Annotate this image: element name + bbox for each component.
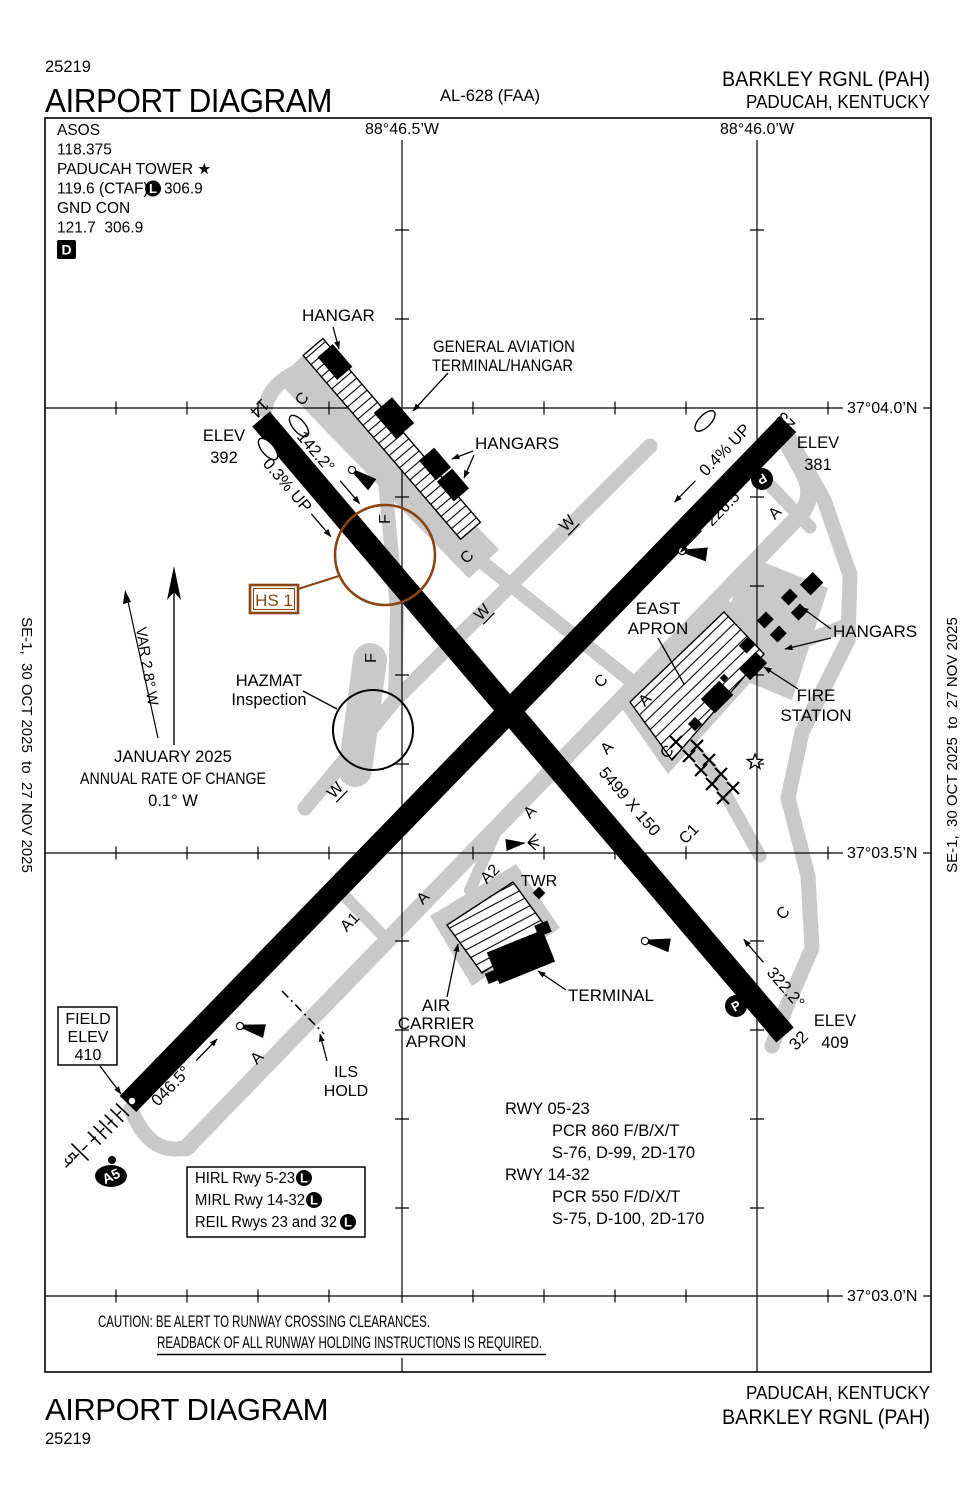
elev-label: ELEV [814, 1012, 856, 1030]
terminal-leader [538, 971, 566, 990]
edition-note-right: SE-1, 30 OCT 2025 to 27 NOV 2025 [944, 617, 961, 873]
airport-name-top: BARKLEY RGNL (PAH) [722, 67, 930, 91]
north-arrows: VAR 2.8° W [123, 566, 181, 745]
east-apron-label-2: APRON [628, 619, 688, 638]
air-carrier-label-3: APRON [406, 1032, 466, 1051]
hangar-label: HANGAR [302, 306, 375, 325]
rwy1432-pcr: PCR 550 F/D/X/T [552, 1188, 680, 1206]
taxiway-label-f: F [363, 653, 380, 663]
air-carrier-label-1: AIR [422, 996, 450, 1015]
elev-rwy23: 381 [804, 456, 832, 474]
city-top: PADUCAH, KENTUCKY [746, 91, 930, 112]
magnetic-north-arrowhead [123, 590, 131, 604]
hangars-label-east: HANGARS [833, 622, 917, 641]
hazmat-label-2: Inspection [231, 691, 306, 709]
tower-label: TWR [521, 873, 557, 890]
hangars-leader [452, 451, 473, 459]
field-elev-value: 410 [75, 1047, 102, 1064]
field-elev-leader [100, 1066, 121, 1094]
taxiway-label-f: F [377, 514, 394, 524]
lat-040-label: 37°04.0’N [847, 400, 917, 417]
asos-label: ASOS [57, 122, 100, 139]
ils-hold-label-2: HOLD [324, 1083, 368, 1100]
lighting-line3: REIL Rwys 23 and 32 [195, 1214, 337, 1231]
ils-hold-leader [320, 1034, 327, 1061]
variation-label: VAR 2.8° W [132, 626, 161, 708]
field-elev-line2: ELEV [68, 1029, 109, 1046]
rwy0523-title: RWY 05-23 [505, 1100, 590, 1118]
comm-block: ASOS 118.375 PADUCAH TOWER ★ 119.6 (CTAF… [57, 122, 211, 259]
chart-number-bottom: 25219 [45, 1430, 91, 1448]
asos-frequency: 118.375 [57, 142, 112, 159]
wind-cone-icon [640, 933, 671, 952]
rwy-number-5: 5 [60, 1149, 80, 1169]
runway-5-threshold-dot [129, 1098, 135, 1104]
star-icon [747, 754, 762, 768]
hangars-leader [464, 455, 474, 478]
lon-460-label: 88°46.0’W [720, 121, 795, 138]
tower-frequency: 119.6 (CTAF) [57, 181, 149, 198]
elev-rwy14: 392 [210, 449, 238, 467]
ga-terminal-label-1: GENERAL AVIATION [433, 337, 575, 356]
hotspot-label: HS 1 [255, 591, 293, 610]
rwy0523-dimensions: 6500 X 150 [428, 730, 500, 803]
taxiway-junction-pad [355, 660, 370, 770]
chart-number-top: 25219 [45, 58, 91, 76]
tower-frequency-uhf: 306.9 [164, 181, 203, 198]
fire-station-label-2: STATION [780, 706, 851, 725]
lighting-line1: HIRL Rwy 5-23 [195, 1170, 295, 1187]
rwy0523-acn: S-76, D-99, 2D-170 [552, 1144, 695, 1162]
runway-info-block: RWY 05-23 PCR 860 F/B/X/T S-76, D-99, 2D… [505, 1100, 704, 1228]
hangars-label-west: HANGARS [475, 434, 559, 453]
taxiway-label-c: C [591, 671, 611, 691]
ground-label: GND CON [57, 200, 130, 217]
ga-terminal-label-2: TERMINAL/HANGAR [432, 356, 573, 375]
taxiway-label-c1: C1 [676, 821, 703, 848]
airport-diagram: 25219 AIRPORT DIAGRAM AL-628 (FAA) BARKL… [0, 0, 978, 1500]
rwy1432-title: RWY 14-32 [505, 1166, 590, 1184]
caution-line2: READBACK OF ALL RUNWAY HOLDING INSTRUCTI… [157, 1333, 542, 1352]
lon-465-label: 88°46.5’W [365, 121, 440, 138]
hazmat-leader [303, 691, 337, 709]
wind-cone-icon [235, 1018, 266, 1038]
lighted-letter: L [344, 1215, 352, 1230]
taxiway-label-a: A [598, 738, 618, 758]
variation-rate: ANNUAL RATE OF CHANGE [80, 770, 266, 788]
lighting-line2: MIRL Rwy 14-32 [195, 1192, 305, 1209]
a5-dot [108, 1156, 116, 1164]
rwy0523-pcr: PCR 860 F/B/X/T [552, 1122, 679, 1140]
ground-frequency: 121.7 306.9 [57, 220, 143, 237]
al-reference: AL-628 (FAA) [440, 87, 540, 105]
lighted-letter: L [300, 1171, 308, 1186]
hotspot-leader [298, 576, 339, 589]
field-elev-line1: FIELD [65, 1011, 110, 1028]
elev-label: ELEV [797, 434, 839, 452]
lighted-letter: L [310, 1193, 318, 1208]
lat-030-label: 37°03.0’N [847, 1288, 917, 1305]
beacon-icon [505, 834, 539, 853]
page-title: AIRPORT DIAGRAM [45, 82, 332, 119]
elev-rwy32: 409 [821, 1034, 849, 1052]
elev-label: ELEV [203, 427, 245, 445]
city-bottom: PADUCAH, KENTUCKY [746, 1382, 930, 1403]
taxiway-label-c: C [773, 903, 793, 923]
air-carrier-label-2: CARRIER [398, 1014, 475, 1033]
datis-letter: D [61, 242, 71, 258]
page-title-bottom: AIRPORT DIAGRAM [45, 1392, 328, 1427]
tower-name: PADUCAH TOWER ★ [57, 161, 211, 178]
caution-line1: CAUTION: BE ALERT TO RUNWAY CROSSING CLE… [98, 1312, 430, 1331]
variation-rate-value: 0.1° W [148, 792, 198, 810]
variation-date: JANUARY 2025 [114, 748, 232, 766]
lighted-letter: L [149, 181, 157, 196]
east-apron-label-1: EAST [636, 599, 680, 618]
airport-name-bottom: BARKLEY RGNL (PAH) [722, 1405, 930, 1429]
terminal-label: TERMINAL [568, 986, 654, 1005]
lat-035-label: 37°03.5’N [847, 845, 917, 862]
ils-hold-label-1: ILS [334, 1064, 358, 1081]
rwy1432-acn: S-75, D-100, 2D-170 [552, 1210, 704, 1228]
ga-terminal-leader [413, 373, 448, 411]
hazmat-label-1: HAZMAT [236, 672, 303, 690]
edition-note-left: SE-1, 30 OCT 2025 to 27 NOV 2025 [18, 617, 35, 873]
runway-23-oval-marker [692, 407, 719, 434]
fire-station-label-1: FIRE [797, 686, 836, 705]
